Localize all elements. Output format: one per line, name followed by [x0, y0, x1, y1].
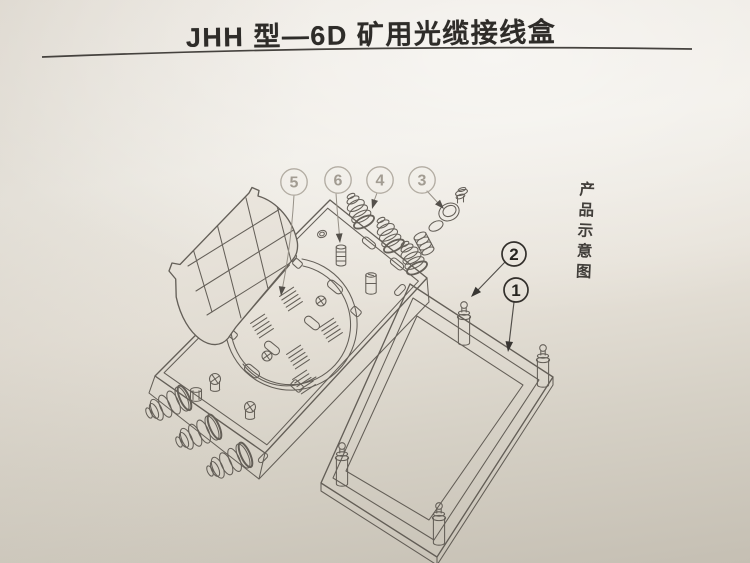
- cable-gland-sw-1: [144, 384, 194, 422]
- ribbed-post: [336, 245, 346, 266]
- callout-5: 5: [281, 169, 307, 195]
- leader-line-3: [427, 191, 439, 204]
- corner-stud-top: [457, 302, 470, 346]
- hex-post: [366, 273, 376, 294]
- leader-line-6: [336, 193, 340, 236]
- coil-spring-2: [251, 314, 274, 338]
- callout-6-number: 6: [334, 173, 343, 190]
- arrowhead-6: [336, 233, 344, 243]
- coil-spring-3: [320, 318, 343, 342]
- gland-seal-parts: [413, 187, 468, 257]
- callout-4-number: 4: [376, 173, 385, 190]
- deck-screw-2: [245, 402, 256, 420]
- cable-gland-ne-3: [399, 240, 429, 277]
- hex-standoff: [191, 388, 202, 402]
- title-underline: [42, 48, 692, 57]
- tray-screw-2: [262, 351, 272, 361]
- leader-line-1: [509, 302, 514, 344]
- tray-lid: [169, 188, 306, 345]
- tray-screw-1: [316, 296, 326, 306]
- leader-line-4: [374, 193, 377, 201]
- corner-stud-left: [335, 443, 348, 487]
- callout-3-number: 3: [418, 173, 427, 190]
- callout-2: 2: [502, 242, 526, 266]
- exploded-view-diagram: 5 6 4 3 2 1: [0, 0, 750, 563]
- coil-spring-4: [287, 345, 310, 369]
- deck-screw-1: [210, 374, 221, 392]
- callout-5-number: 5: [290, 175, 299, 192]
- leader-line-2: [477, 262, 505, 291]
- base-plate: [321, 284, 553, 563]
- callout-4: 4: [367, 167, 393, 193]
- callout-1-number: 1: [511, 281, 520, 300]
- callout-3: 3: [409, 167, 435, 193]
- callout-1: 1: [504, 278, 528, 302]
- cable-gland-sw-3: [205, 441, 255, 480]
- callout-2-number: 2: [509, 245, 518, 264]
- arrowhead-4: [369, 199, 378, 210]
- callout-6: 6: [325, 167, 351, 193]
- photographed-page: JHH 型—6D 矿用光缆接线盒 产品示意图: [0, 0, 750, 563]
